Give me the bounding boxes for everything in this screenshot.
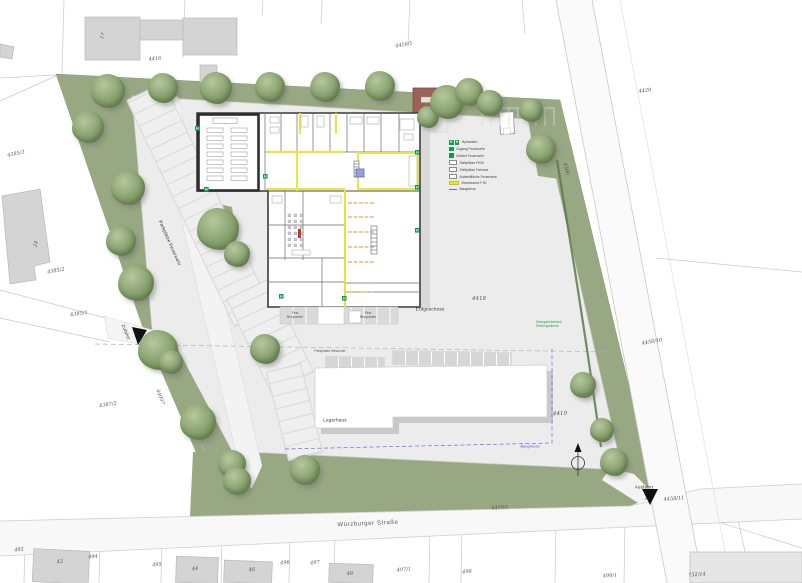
- hydrant-icon: H: [415, 185, 420, 190]
- legend-item: Zugang Feuerwehr: [449, 147, 513, 152]
- legend-item: Brandwand F 90: [449, 181, 513, 185]
- ausfahrt-arrow: [642, 489, 658, 505]
- elevator: [356, 169, 364, 177]
- legend-label: Stellplätze PKW: [460, 161, 484, 165]
- legend-item: Hydranten: [449, 140, 513, 145]
- canopy-first-responder: [280, 307, 398, 324]
- legend-label: Hydranten: [462, 140, 478, 144]
- hydrant-double-icon: [455, 140, 460, 145]
- hydrant-icon: H: [263, 174, 268, 179]
- area-gray-icon: [449, 174, 457, 179]
- hydrant-icon: H: [204, 187, 209, 192]
- hydrant-icon: H: [415, 150, 420, 155]
- legend-label: Brandwand F 90: [462, 181, 487, 185]
- zufahrt-arrow: [132, 327, 147, 345]
- buildings-svg: HHHHHHHH: [0, 0, 802, 583]
- access-green-icon: [449, 147, 454, 152]
- hydrant-icon: H: [195, 126, 200, 131]
- hedge-line: [557, 160, 601, 447]
- legend-item: Baugrenze: [449, 187, 513, 191]
- legend-label: Zugang Feuerwehr: [456, 147, 485, 151]
- bike-gray-icon: [449, 167, 457, 172]
- stall-gray-icon: [449, 160, 457, 165]
- yard-stalls: [482, 108, 554, 126]
- hydrant-icon: H: [415, 228, 420, 233]
- legend-item: Aufstellfläche Feuerwehr: [449, 174, 513, 179]
- north-arrow: [572, 443, 585, 476]
- exit-green-icon: [449, 153, 454, 158]
- map-legend: HydrantenZugang FeuerwehrZufahrt Feuerwe…: [449, 140, 513, 194]
- legend-item: Stellplätze PKW: [449, 160, 513, 165]
- legend-label: Baugrenze: [460, 187, 476, 191]
- legend-label: Stellplätze Fahrrad: [460, 168, 488, 172]
- hydrant-icon: H: [279, 294, 284, 299]
- hydrant-icon: H: [342, 296, 347, 301]
- site-plan: HHHHHHHH 1744164416/1442043004385/324438…: [0, 0, 802, 583]
- red-marker: [298, 229, 301, 238]
- line-blue-icon: [449, 189, 457, 190]
- lagerhaus-building: [315, 365, 553, 434]
- legend-label: Aufstellfläche Feuerwehr: [460, 175, 497, 179]
- line-yellow-icon: [449, 181, 459, 185]
- legend-item: Stellplätze Fahrrad: [449, 167, 513, 172]
- hydrant-double-icon: [449, 140, 454, 145]
- legend-item: Zufahrt Feuerwehr: [449, 153, 513, 158]
- legend-label: Zufahrt Feuerwehr: [456, 154, 484, 158]
